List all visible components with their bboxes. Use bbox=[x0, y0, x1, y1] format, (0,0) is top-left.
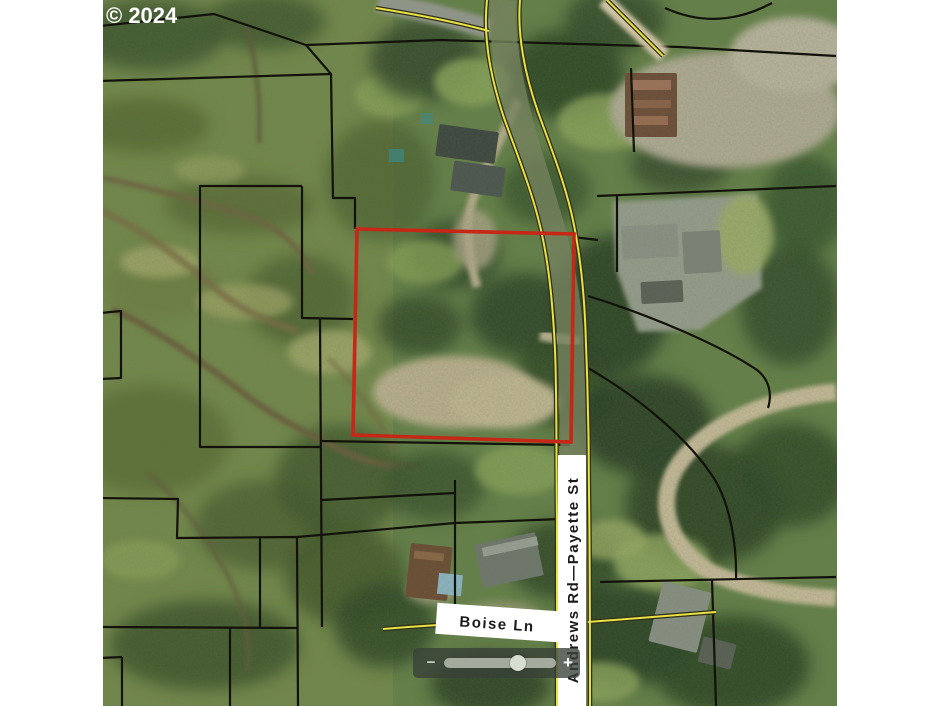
zoom-in-button[interactable]: + bbox=[558, 648, 578, 678]
copyright-watermark: © 2024 bbox=[106, 3, 178, 28]
aerial-photo-layers: Andrews Rd—Payette St Boise Ln © 2024 bbox=[70, 0, 860, 706]
map-viewport[interactable]: Andrews Rd—Payette St Boise Ln © 2024 − … bbox=[0, 0, 941, 706]
zoom-slider-thumb[interactable] bbox=[510, 655, 526, 671]
zoom-slider-track[interactable] bbox=[444, 658, 556, 668]
aerial-photo[interactable]: Andrews Rd—Payette St Boise Ln © 2024 bbox=[0, 0, 941, 706]
zoom-slider[interactable]: − + bbox=[413, 648, 580, 678]
zoom-out-button[interactable]: − bbox=[421, 648, 441, 678]
